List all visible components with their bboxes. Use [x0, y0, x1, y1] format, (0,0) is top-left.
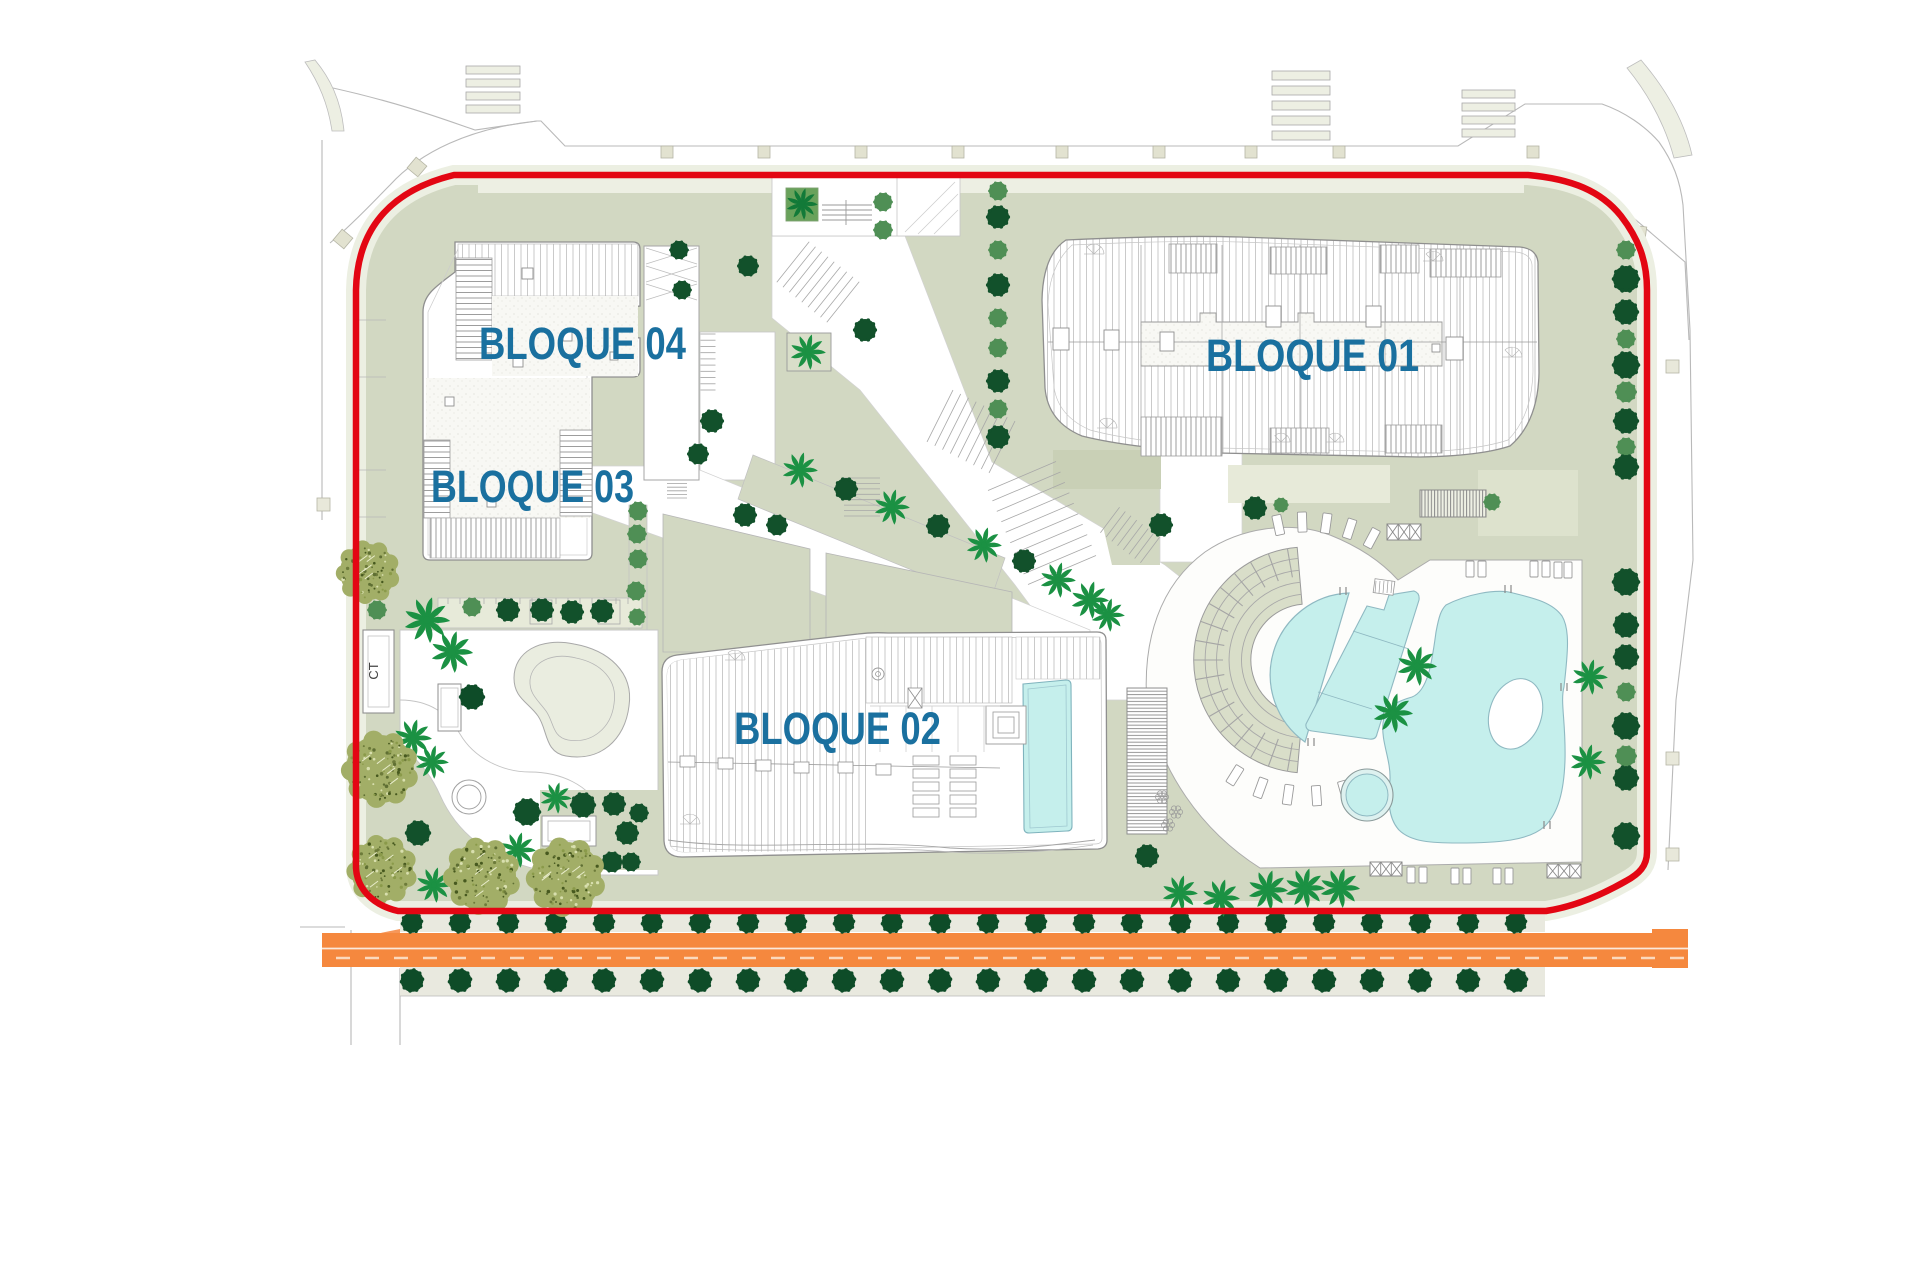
- svg-text:BLOQUE 04: BLOQUE 04: [479, 318, 686, 369]
- svg-text:BLOQUE 02: BLOQUE 02: [734, 703, 941, 754]
- svg-text:BLOQUE 03: BLOQUE 03: [431, 461, 634, 512]
- svg-text:CT: CT: [366, 662, 381, 679]
- svg-text:BLOQUE 01: BLOQUE 01: [1206, 330, 1419, 381]
